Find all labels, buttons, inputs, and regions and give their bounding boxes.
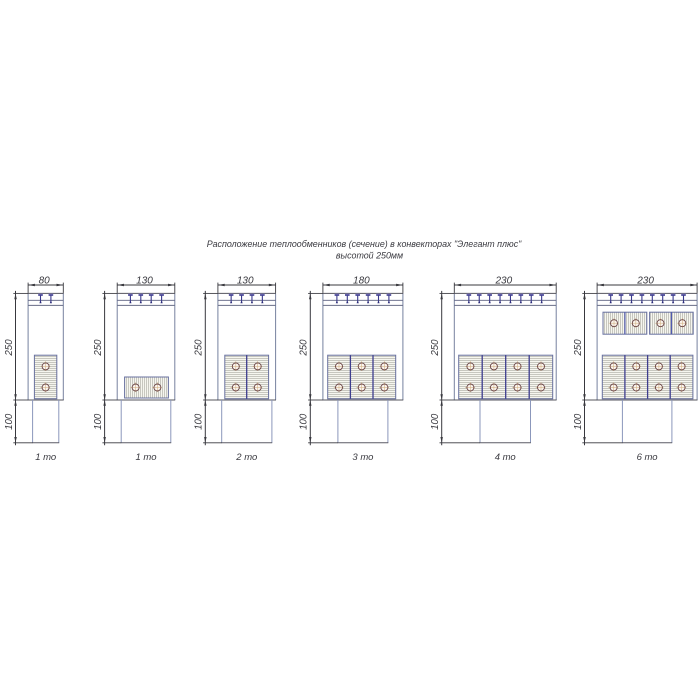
svg-text:230: 230 xyxy=(636,275,654,286)
svg-text:100: 100 xyxy=(93,413,104,430)
svg-text:1 то: 1 то xyxy=(135,452,156,463)
svg-text:80: 80 xyxy=(39,275,51,286)
svg-text:Расположение теплообменников (: Расположение теплообменников (сечение) в… xyxy=(207,239,522,249)
svg-text:4 то: 4 то xyxy=(495,452,516,463)
svg-text:250: 250 xyxy=(430,339,441,357)
svg-text:130: 130 xyxy=(136,275,153,286)
svg-text:6 то: 6 то xyxy=(637,452,658,463)
svg-text:250: 250 xyxy=(93,339,104,357)
svg-text:250: 250 xyxy=(4,339,15,357)
svg-text:250: 250 xyxy=(299,339,310,357)
svg-text:100: 100 xyxy=(4,413,15,430)
svg-text:100: 100 xyxy=(194,413,205,430)
svg-text:100: 100 xyxy=(573,413,584,430)
svg-text:250: 250 xyxy=(194,339,205,357)
svg-text:130: 130 xyxy=(237,275,254,286)
svg-text:2 то: 2 то xyxy=(235,452,257,463)
svg-text:высотой 250мм: высотой 250мм xyxy=(336,251,403,261)
svg-text:250: 250 xyxy=(573,339,584,357)
svg-text:100: 100 xyxy=(430,413,441,430)
svg-text:100: 100 xyxy=(299,413,310,430)
svg-text:1 то: 1 то xyxy=(35,452,56,463)
svg-text:3 то: 3 то xyxy=(352,452,373,463)
svg-text:230: 230 xyxy=(494,275,512,286)
svg-text:180: 180 xyxy=(353,275,370,286)
